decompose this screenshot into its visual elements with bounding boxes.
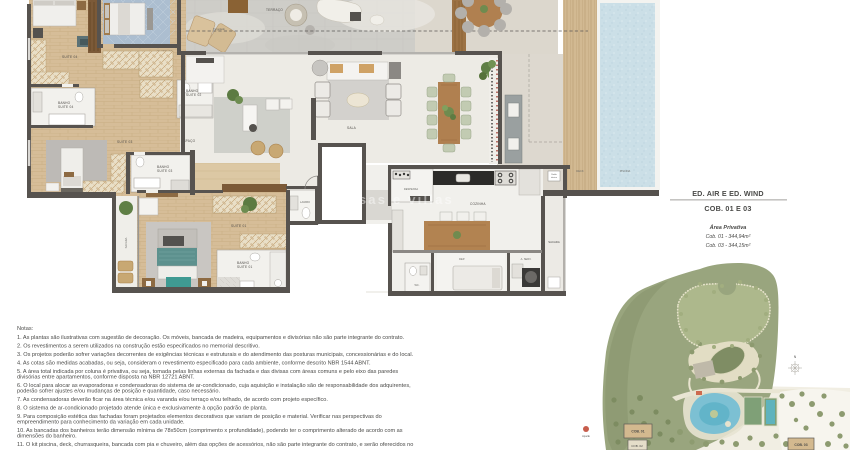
- svg-text:1. As plantas são ilustrativas: 1. As plantas são ilustrativas com suges…: [17, 335, 405, 341]
- svg-text:SUITE 03: SUITE 03: [157, 169, 172, 173]
- svg-text:SUITE 02: SUITE 02: [186, 93, 201, 97]
- svg-text:COB. 02: COB. 02: [631, 444, 643, 448]
- svg-text:3. Os projetos poderão sofrer: 3. Os projetos poderão sofrer variações …: [17, 352, 414, 358]
- svg-text:COB. 01: COB. 01: [631, 430, 644, 434]
- svg-text:SUITE 04: SUITE 04: [58, 105, 73, 109]
- svg-text:DESPENSA: DESPENSA: [404, 187, 418, 191]
- svg-text:SUITE 03: SUITE 03: [117, 140, 132, 144]
- svg-text:4. As cotas são medidas acabad: 4. As cotas são medidas acabadas, ou sej…: [17, 361, 371, 367]
- svg-text:SACADA: SACADA: [124, 237, 128, 248]
- svg-text:TERRAÇO: TERRAÇO: [266, 8, 283, 12]
- svg-text:dimensões do banheiro.: dimensões do banheiro.: [17, 434, 77, 440]
- svg-text:7. As condensadoras deverão fi: 7. As condensadoras deverão ficar na áre…: [17, 397, 328, 403]
- svg-text:Portão: Portão: [551, 173, 556, 176]
- svg-text:DEP.: DEP.: [459, 257, 465, 261]
- svg-text:Pergolado: Pergolado: [213, 27, 225, 31]
- svg-text:2. Os revestimentos a serem ut: 2. Os revestimentos a serem utilizados n…: [17, 344, 260, 350]
- svg-text:COB. 01 E 03: COB. 01 E 03: [704, 204, 751, 213]
- svg-text:DECK: DECK: [576, 169, 583, 173]
- svg-text:A. SERV.: A. SERV.: [521, 257, 532, 261]
- svg-text:Cob. 03 - 344,15m²: Cob. 03 - 344,15m²: [706, 243, 751, 249]
- svg-text:ED. AIR E ED. WIND: ED. AIR E ED. WIND: [692, 189, 764, 198]
- svg-text:SALA: SALA: [347, 126, 357, 130]
- svg-text:PISCINA: PISCINA: [620, 169, 631, 173]
- svg-text:técnico: técnico: [551, 176, 557, 179]
- svg-text:Área Privativa: Área Privativa: [709, 224, 747, 231]
- svg-text:SUITE 01: SUITE 01: [237, 265, 252, 269]
- svg-text:kasas e villas: kasas e villas: [340, 192, 454, 207]
- svg-text:COB. 03: COB. 03: [794, 443, 807, 447]
- svg-text:LAVABO: LAVABO: [300, 200, 310, 204]
- svg-text:empreendimento para conhecimen: empreendimento para conhecimento da vari…: [17, 420, 185, 426]
- svg-text:divisórias entre apartamentos,: divisórias entre apartamentos, conforme …: [17, 375, 195, 381]
- svg-text:SACADA: SACADA: [548, 240, 560, 244]
- svg-text:Notas:: Notas:: [17, 326, 34, 332]
- svg-text:poderão sofrer ajustes e/ou mu: poderão sofrer ajustes e/ou mudanças de …: [17, 389, 221, 395]
- svg-text:SUITE 01: SUITE 01: [231, 224, 246, 228]
- svg-text:SUITE 04: SUITE 04: [62, 55, 77, 59]
- svg-text:8. O sistema de ar-condicionad: 8. O sistema de ar-condicionado projetad…: [17, 406, 268, 412]
- svg-text:11. O kit piscina, deck, churr: 11. O kit piscina, deck, churrasqueira, …: [17, 442, 413, 448]
- svg-text:WC.: WC.: [414, 283, 419, 287]
- svg-text:COZINHA: COZINHA: [470, 202, 486, 206]
- svg-text:Cob. 01 - 344,94m²: Cob. 01 - 344,94m²: [706, 234, 751, 240]
- svg-text:Açucle: Açucle: [582, 434, 590, 438]
